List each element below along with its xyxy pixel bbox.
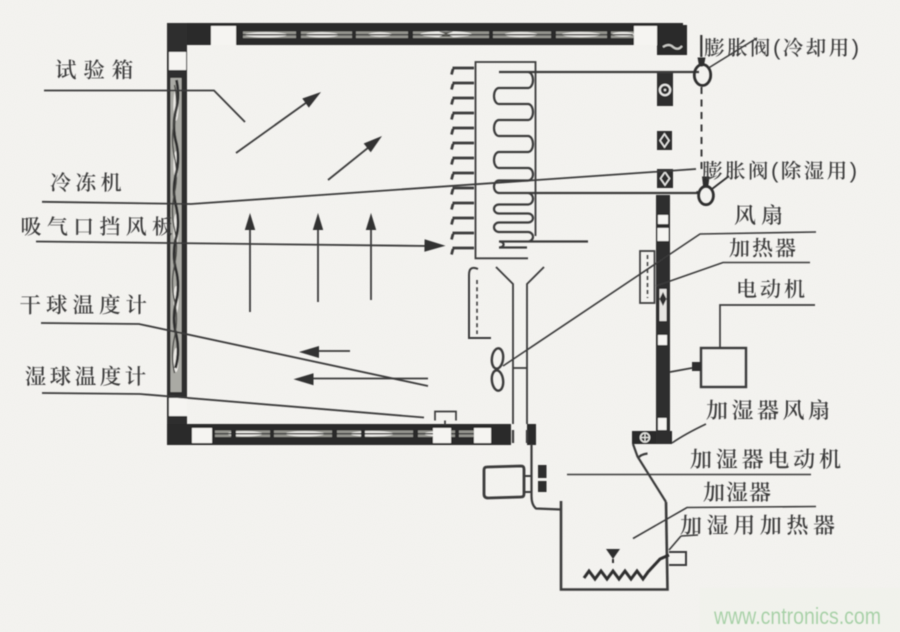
svg-text:): ) <box>852 35 859 60</box>
svg-text:(: ( <box>771 158 779 183</box>
svg-text:): ) <box>850 158 857 183</box>
svg-text:www.cntronics.com: www.cntronics.com <box>713 603 881 629</box>
svg-text:(: ( <box>773 35 781 60</box>
